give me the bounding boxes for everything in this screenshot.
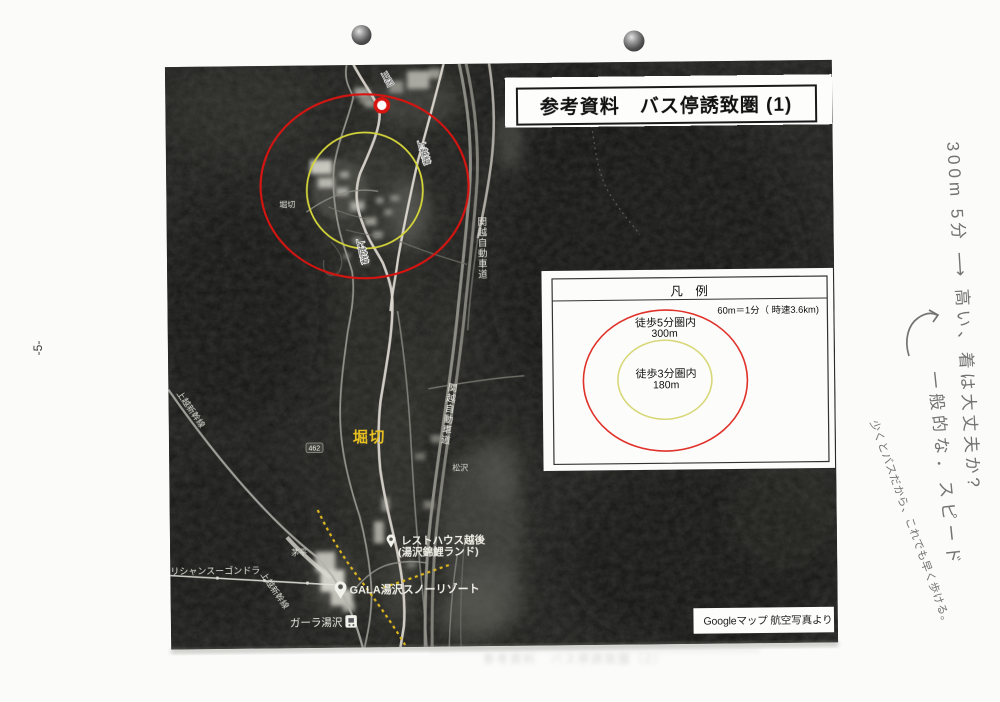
svg-text:凡 例: 凡 例 bbox=[670, 284, 708, 298]
svg-text:堀切: 堀切 bbox=[353, 429, 386, 446]
svg-text:300m: 300m bbox=[651, 328, 678, 340]
svg-text:参考資料 バス停誘致圏 (1): 参考資料 バス停誘致圏 (1) bbox=[540, 93, 793, 119]
svg-text:(湯沢錦鯉ランド): (湯沢錦鯉ランド) bbox=[398, 545, 479, 559]
svg-text:180m: 180m bbox=[653, 379, 680, 391]
svg-text:Googleマップ 航空写真より: Googleマップ 航空写真より bbox=[703, 613, 832, 627]
svg-text:参考資料 バス停誘致圏（2）: 参考資料 バス停誘致圏（2） bbox=[483, 652, 667, 666]
svg-text:リシャンスーゴンドラ: リシャンスーゴンドラ bbox=[170, 565, 260, 577]
svg-text:-5-: -5- bbox=[31, 341, 45, 356]
svg-text:60m＝1分（ 時速3.6km): 60m＝1分（ 時速3.6km) bbox=[717, 304, 819, 316]
svg-text:GALA湯沢スノーリゾート: GALA湯沢スノーリゾート bbox=[349, 581, 479, 596]
svg-text:関越自動車道: 関越自動車道 bbox=[478, 217, 489, 281]
svg-text:堀切: 堀切 bbox=[279, 200, 295, 209]
svg-text:松沢: 松沢 bbox=[452, 462, 468, 472]
svg-text:茅平: 茅平 bbox=[291, 547, 307, 557]
svg-text:ガーラ湯沢: ガーラ湯沢 bbox=[290, 616, 343, 630]
svg-text:462: 462 bbox=[308, 445, 320, 452]
